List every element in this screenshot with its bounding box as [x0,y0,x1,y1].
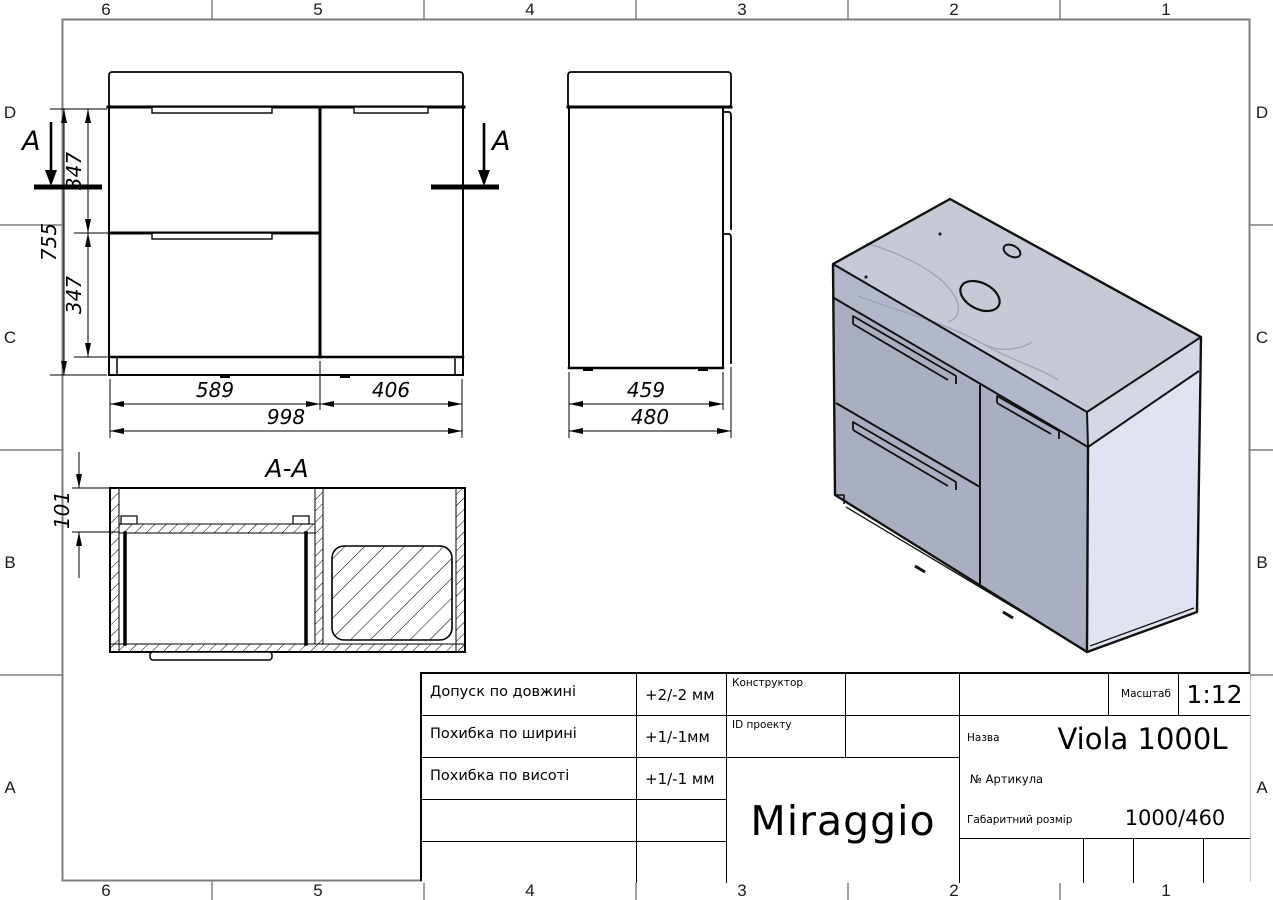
col-label-top: 6 [101,0,110,19]
dim-right-width: 406 [372,378,410,402]
countertop-side [568,72,731,107]
door-cavity-section [332,546,452,640]
dim-lower-drawer: 347 [62,276,86,314]
tolerance-row-label: Похибка по ширині [422,716,637,758]
col-label-top: 4 [525,0,534,19]
drawer1-front-profile [723,112,731,229]
tolerance-row-empty [422,800,637,842]
col-label-bottom: 2 [949,881,958,900]
dim-body-depth: 459 [627,378,665,402]
iso-foot [1003,612,1013,618]
section-right-wall [456,488,465,652]
row-label-right: C [1256,328,1268,347]
dim-total-width: 998 [267,405,305,429]
section-left-wall [110,488,119,652]
countertop-front [109,72,463,107]
col-label-top: 2 [949,0,958,19]
overall-size-value: 1000/460 [1110,806,1240,830]
tolerance-row-value: +1/-1 мм [637,758,727,800]
article-label: № Артикула [965,769,1043,786]
bottom-strip-cell [1204,839,1250,883]
section-letter-left: A [20,126,40,157]
project-id-value-cell [846,716,960,758]
drawer2-front-profile [723,234,731,363]
drawer2-handle [152,233,272,239]
scale-empty-cell [960,674,1109,716]
col-label-bottom: 1 [1161,881,1170,900]
foot-mark [583,367,593,371]
col-label-bottom: 4 [525,881,534,900]
door-handle [354,107,428,113]
row-label-right: D [1256,103,1268,122]
col-label-top: 1 [1161,0,1170,19]
foot-mark [698,367,708,371]
bottom-strip-cell [1134,839,1204,883]
tolerance-row-value: +1/-1мм [637,716,727,758]
dim-total-depth: 480 [631,405,669,429]
project-id-cell: ID проекту [727,716,846,758]
title-block: Допуск по довжині +2/-2 мм Похибка по ши… [420,672,1250,881]
row-label-left: D [4,103,16,122]
row-label-left: A [4,778,16,797]
section-title: A-A [263,454,308,483]
bottom-strip-cell [960,839,1084,883]
drawer-runner [121,516,137,524]
tolerance-row-empty [422,842,637,883]
drawer-runner [293,516,309,524]
iso-front-corner-edge [1087,447,1088,652]
front-view [108,72,464,378]
scale-label: Масштаб [1109,674,1179,716]
col-label-top: 3 [737,0,746,19]
tolerance-row-label: Похибка по висоті [422,758,637,800]
drawer-front-section [119,524,315,533]
bottom-strip-cell [1084,839,1134,883]
dim-left-width: 589 [196,378,234,402]
constructor-value-cell [846,674,960,716]
name-label: Назва [962,729,1000,744]
brand-logo: Miraggio [727,758,960,883]
row-label-left: C [4,328,16,347]
side-dimensions: 459 480 [569,367,731,438]
drawer1-handle [152,107,272,113]
row-label-left: B [4,553,15,572]
scale-value: 1:12 [1179,674,1250,716]
col-label-bottom: 3 [737,881,746,900]
col-label-top: 5 [313,0,322,19]
row-label-right: A [1256,778,1268,797]
section-letter-right: A [490,126,510,157]
tolerance-row-empty [637,800,727,842]
section-view: A-A [110,454,465,660]
row-label-right: B [1256,553,1267,572]
section-dimensions: 101 [50,452,119,578]
col-label-bottom: 5 [313,881,322,900]
tolerance-row-empty [637,842,727,883]
name-value: Viola 1000L [1040,722,1245,756]
name-block: Назва Viola 1000L № Артикула Габаритний … [960,716,1250,839]
dim-total-height: 755 [37,223,61,261]
drawer-front-lip [150,652,272,660]
side-view [568,72,731,371]
iso-foot [915,566,925,572]
front-dimensions: 755 347 347 589 406 998 [37,109,462,438]
col-label-bottom: 6 [101,881,110,900]
constructor-cell: Конструктор [727,674,846,716]
section-bottom-wall [110,644,465,652]
iso-view [833,199,1201,652]
foot-mark [340,374,350,378]
tolerance-row-label: Допуск по довжині [422,674,637,716]
tolerance-row-value: +2/-2 мм [637,674,727,716]
overall-size-label: Габаритний розмір [962,811,1072,826]
section-cut-marks: A A [20,122,510,187]
section-mid-wall [315,488,323,644]
dim-upper-drawer: 347 [62,152,86,190]
dim-front-inset: 101 [50,491,74,529]
